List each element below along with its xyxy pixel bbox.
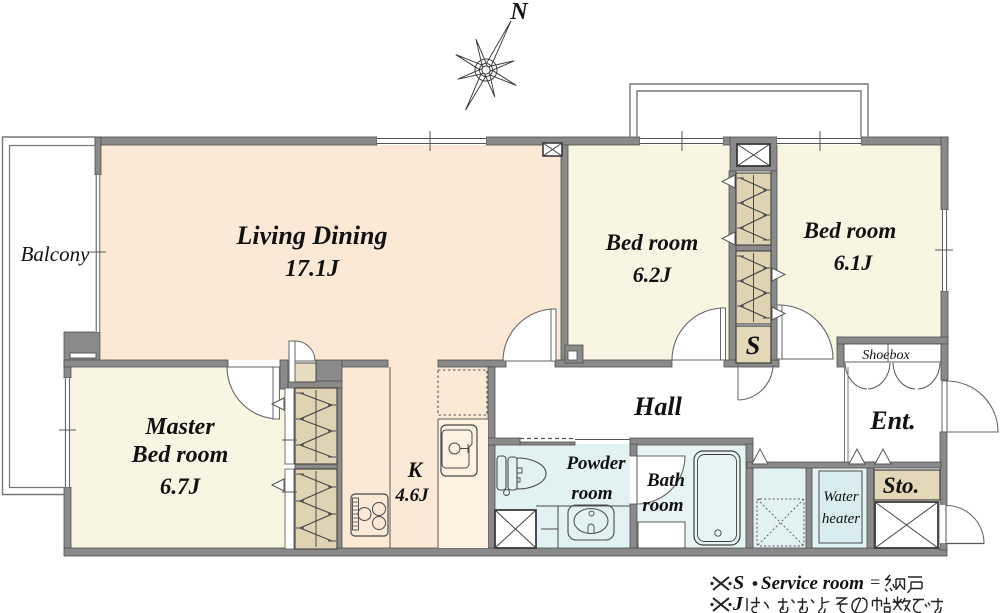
svg-text:Bed room: Bed room: [131, 442, 229, 468]
svg-text:K: K: [407, 457, 424, 482]
svg-text:Balcony: Balcony: [21, 242, 90, 266]
svg-text:Service room: Service room: [761, 573, 864, 594]
svg-text:Master: Master: [144, 414, 215, 440]
svg-text:N: N: [509, 0, 529, 25]
svg-text:6.2J: 6.2J: [633, 262, 673, 287]
svg-text:Bed room: Bed room: [605, 230, 699, 255]
svg-text:Hall: Hall: [633, 392, 682, 421]
svg-text:Water: Water: [823, 489, 858, 505]
svg-text:Powder: Powder: [565, 453, 626, 474]
svg-text:=: =: [869, 572, 881, 592]
svg-text:Shoebox: Shoebox: [862, 348, 910, 363]
svg-text:room: room: [571, 483, 612, 504]
svg-text:Living Dining: Living Dining: [236, 221, 388, 250]
svg-text:4.6J: 4.6J: [394, 485, 429, 506]
svg-text:S: S: [746, 331, 760, 360]
svg-text:6.1J: 6.1J: [834, 250, 874, 275]
svg-text:S: S: [733, 572, 744, 594]
svg-text:Bed room: Bed room: [803, 218, 897, 243]
svg-text:6.7J: 6.7J: [160, 474, 202, 499]
svg-text:heater: heater: [822, 511, 860, 527]
svg-text:J: J: [732, 593, 744, 613]
svg-text:Ent.: Ent.: [869, 406, 916, 435]
svg-text:Sto.: Sto.: [883, 473, 919, 498]
svg-text:Bath: Bath: [646, 470, 685, 491]
svg-text:room: room: [642, 495, 683, 516]
svg-text:17.1J: 17.1J: [285, 256, 340, 282]
